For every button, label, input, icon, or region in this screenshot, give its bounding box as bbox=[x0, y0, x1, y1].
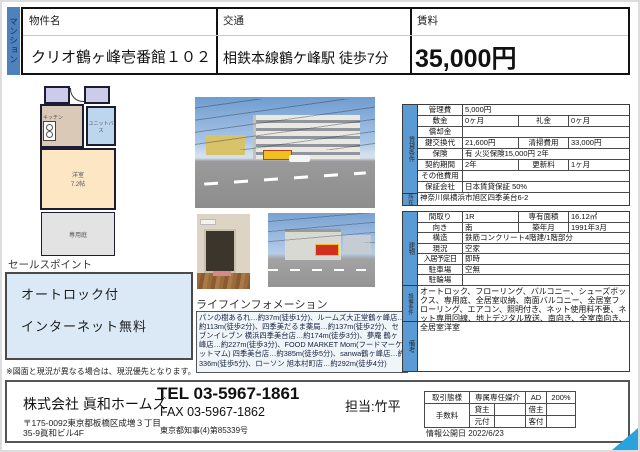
table-row-bicycle: 駐輪場 bbox=[418, 275, 629, 286]
ad-label: AD bbox=[526, 392, 547, 404]
section-tab-building: 建物 bbox=[403, 212, 417, 285]
category-tab-mansion: マンション bbox=[7, 7, 20, 75]
table-row-layout: 間取り 1R 専有面積 16.12㎡ bbox=[418, 212, 629, 223]
section-tab-rental: 賃貸条件 bbox=[403, 105, 417, 193]
lessor-value bbox=[495, 404, 526, 416]
details-section-strip: 賃貸条件 所在 bbox=[403, 105, 418, 205]
fax-number: FAX 03-5967-1862 bbox=[160, 405, 265, 419]
section-tab-location: 所在 bbox=[403, 193, 417, 205]
details-table-rental: 賃貸条件 所在 管理費 5,000円 敷金 0ヶ月 礼金 0ヶ月 償却金 鍵交換… bbox=[402, 104, 630, 206]
lessee-value bbox=[547, 404, 576, 416]
published-date: 情報公開日 2022/6/23 bbox=[426, 428, 504, 439]
sales-point-1: オートロック付 bbox=[21, 284, 119, 303]
deal-table-row: 取引態様 専属専任媒介 AD 200% bbox=[425, 392, 576, 404]
table-row-other-fees: その他費用 bbox=[418, 171, 629, 182]
header-label-underline bbox=[23, 35, 628, 36]
kitchen-sink-icon bbox=[43, 121, 56, 141]
kyakuzuke-value bbox=[547, 416, 576, 428]
section-tab-equipment: 設備条件 bbox=[403, 285, 417, 321]
motozuke-label: 元付 bbox=[470, 416, 495, 428]
deal-terms-table: 取引態様 専属専任媒介 AD 200% 手数料 貸主 借主 元付 客付 bbox=[424, 391, 576, 428]
header-divider bbox=[410, 9, 412, 73]
table-row-direction: 向き 南 築年月 1991年3月 bbox=[418, 223, 629, 234]
motozuke-value bbox=[495, 416, 526, 428]
rent-label: 賃料 bbox=[417, 13, 438, 28]
access-label: 交通 bbox=[223, 13, 244, 28]
window-door-in-photo bbox=[204, 229, 236, 273]
main-room-label: 洋室 bbox=[72, 170, 84, 179]
kyakuzuke-label: 客付 bbox=[526, 416, 547, 428]
remarks-empty bbox=[418, 322, 629, 372]
garden-label: 専用庭 bbox=[69, 230, 87, 239]
door-arc-icon bbox=[70, 88, 84, 102]
exterior-street-photo bbox=[195, 97, 375, 208]
sales-point-2: インターネット無料 bbox=[21, 316, 147, 335]
red-sign-in-photo bbox=[315, 244, 339, 256]
floor-mat-in-photo bbox=[213, 271, 231, 276]
floor-plan-garden: 専用庭 bbox=[41, 212, 115, 256]
table-row-status: 現況 空家 bbox=[418, 244, 629, 255]
unit-bath-label: ユニットバス bbox=[88, 121, 113, 134]
access-value: 相鉄本線鶴ケ峰駅 徒歩7分 bbox=[223, 48, 389, 68]
deal-type-value: 専属専任媒介 bbox=[470, 392, 526, 404]
disclaimer-note: ※図面と現況が異なる場合は、現況優先となります。 bbox=[6, 366, 196, 377]
floor-plan-unit-bath: ユニットバス bbox=[86, 106, 116, 146]
power-lines bbox=[195, 99, 375, 150]
lessee-label: 借主 bbox=[526, 404, 547, 416]
phone-number: TEL 03-5967-1861 bbox=[157, 384, 299, 404]
license-number: 東京都知事(4)第85339号 bbox=[160, 425, 248, 436]
footer-box: 株式会社 眞和ホームズ 〒175-0092東京都板橋区成増３丁目 35-9眞和ビ… bbox=[5, 380, 630, 443]
details-table-building: 建物 設備条件 備考 間取り 1R 専有面積 16.12㎡ 向き 南 築年月 1… bbox=[402, 211, 630, 372]
floor-plan-entrance-room bbox=[84, 86, 110, 104]
aircon-in-photo bbox=[200, 219, 216, 225]
table-row-move-in: 入居予定日 即時 bbox=[418, 254, 629, 265]
floor-plan: キッチン ユニットバス 洋室 7.2帖 専用庭 bbox=[40, 86, 116, 258]
deal-table-row: 手数料 貸主 借主 bbox=[425, 404, 576, 416]
ad-value: 200% bbox=[547, 392, 576, 404]
property-name-value: クリオ鶴ヶ峰壱番館１０２ bbox=[31, 46, 211, 67]
header-divider bbox=[216, 9, 218, 73]
exterior-building-photo bbox=[268, 213, 375, 287]
shop-sign-in-photo bbox=[263, 150, 292, 160]
life-info-box: パンの樹あるれ…約37m(徒歩1分)、ルームズ大正堂鶴ヶ峰店…約113m(徒歩2… bbox=[196, 311, 408, 373]
company-address-line2: 35-9眞和ビル4F bbox=[23, 427, 84, 439]
agent-name: 担当:竹平 bbox=[345, 396, 401, 415]
company-name: 株式会社 眞和ホームズ bbox=[23, 394, 166, 414]
table-row-guarantor: 保証会社 日本賃貸保証 50% bbox=[418, 182, 629, 193]
table-row-mgmt: 管理費 5,000円 bbox=[418, 105, 629, 116]
table-row-contract: 契約期間 2年 更新料 1ヶ月 bbox=[418, 160, 629, 171]
equipment-text: オートロック、フローリング、バルコニー、シューズボックス、専用庭、全居室収納、南… bbox=[418, 286, 629, 322]
sales-points-box: オートロック付 インターネット無料 bbox=[5, 272, 193, 360]
corner-fold-decoration bbox=[612, 428, 638, 450]
header-table: 物件名 交通 賃料 クリオ鶴ヶ峰壱番館１０２ 相鉄本線鶴ケ峰駅 徒歩7分 35,… bbox=[21, 7, 630, 75]
car-in-photo bbox=[289, 155, 311, 163]
table-row-parking: 駐車場 空無 bbox=[418, 265, 629, 276]
table-row-insurance: 保険 有 火災保険15,000円 2年 bbox=[418, 149, 629, 160]
floor-plan-kitchen: キッチン bbox=[40, 104, 84, 148]
main-room-size: 7.2帖 bbox=[71, 179, 85, 188]
floor-plan-storage-room bbox=[44, 86, 70, 104]
details-section-strip-2: 建物 設備条件 備考 bbox=[403, 212, 418, 371]
table-row-deposit: 敷金 0ヶ月 礼金 0ヶ月 bbox=[418, 116, 629, 127]
section-tab-remarks: 備考 bbox=[403, 321, 417, 371]
lessor-label: 貸主 bbox=[470, 404, 495, 416]
deal-type-label: 取引態様 bbox=[425, 392, 470, 404]
table-row-address: 神奈川県横浜市旭区四季美台6-2 bbox=[418, 193, 629, 205]
road-lane-marks bbox=[204, 171, 366, 186]
table-row-structure: 構造 鉄筋コンクリート4階建/1階部分 bbox=[418, 233, 629, 244]
fee-label: 手数料 bbox=[425, 404, 470, 428]
floor-plan-main-room: 洋室 7.2帖 bbox=[40, 148, 116, 210]
rent-value: 35,000円 bbox=[415, 39, 516, 75]
table-row-key-exchange: 鍵交換代 21,600円 清掃費用 33,000円 bbox=[418, 138, 629, 149]
kitchen-label: キッチン bbox=[43, 114, 63, 121]
property-flyer-page: マンション 物件名 交通 賃料 クリオ鶴ヶ峰壱番館１０２ 相鉄本線鶴ケ峰駅 徒歩… bbox=[0, 0, 640, 452]
category-tab-label: マンション bbox=[8, 17, 20, 65]
road-lane-marks-2 bbox=[268, 269, 375, 271]
table-row-amortization: 償却金 bbox=[418, 127, 629, 138]
property-name-label: 物件名 bbox=[29, 13, 61, 28]
interior-photo bbox=[197, 214, 250, 289]
power-lines-2 bbox=[268, 213, 375, 243]
